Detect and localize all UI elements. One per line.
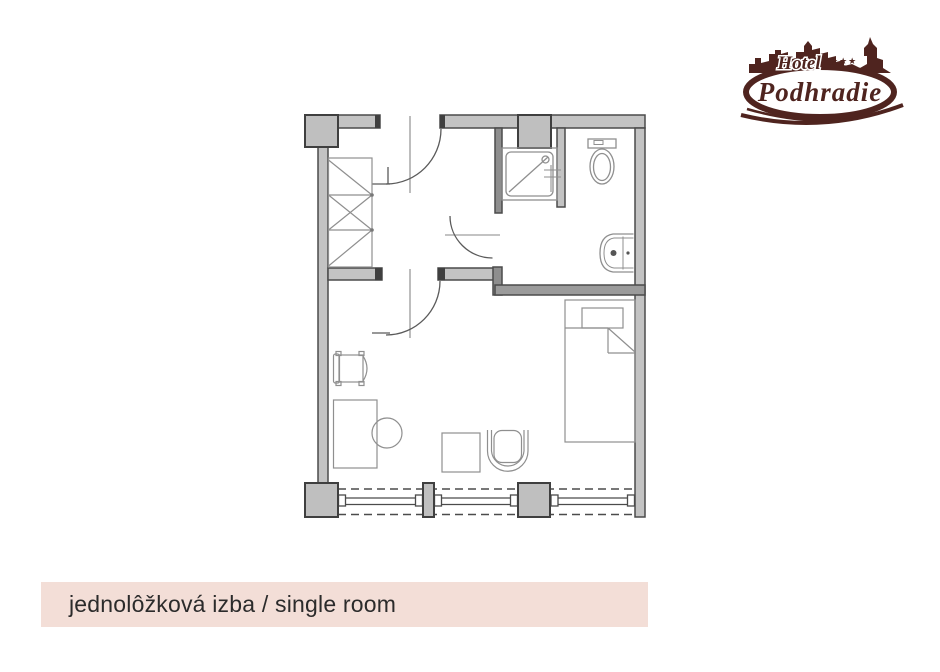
logo-stars: ★★★	[830, 56, 857, 66]
sink	[600, 234, 634, 272]
tub-chair	[488, 430, 529, 471]
entrance-door	[372, 116, 441, 193]
column-bottom-middle	[518, 483, 550, 517]
toilet	[588, 139, 616, 184]
column-top-middle	[518, 115, 551, 148]
column-bottom-small	[423, 483, 434, 517]
side-table	[442, 433, 480, 472]
shower	[502, 148, 561, 200]
wardrobe	[329, 158, 374, 267]
bathroom-bottom-wall	[495, 285, 645, 295]
desk	[334, 400, 378, 468]
shower-divider-wall	[557, 128, 565, 207]
furniture	[334, 300, 636, 472]
right-wall	[635, 128, 645, 517]
blanket-fold	[565, 328, 635, 353]
doors	[372, 116, 500, 338]
pillow	[582, 308, 623, 328]
caption-bar: jednolôžková izba / single room	[41, 582, 648, 627]
columns	[305, 115, 551, 517]
left-wall	[318, 147, 328, 483]
window-wall	[338, 489, 635, 515]
armchair	[334, 352, 368, 386]
bathroom-fixtures	[502, 139, 634, 272]
bathroom-door	[445, 216, 500, 258]
top-wall-left	[338, 115, 380, 128]
room-type-label: jednolôžková izba / single room	[41, 591, 396, 618]
page: Hotel ★★★ Podhradie jednolôžková izba / …	[0, 0, 940, 672]
vestibule-wall-left	[328, 268, 382, 280]
logo-name-text: Podhradie	[757, 77, 883, 107]
column-top-left	[305, 115, 338, 147]
column-bottom-left	[305, 483, 338, 517]
single-bed	[565, 300, 635, 442]
vestibule-wall-right	[438, 268, 497, 280]
logo-hotel-text: Hotel	[776, 53, 821, 74]
bathroom-left-wall-upper	[495, 128, 502, 213]
hotel-logo: Hotel ★★★ Podhradie	[733, 33, 911, 129]
